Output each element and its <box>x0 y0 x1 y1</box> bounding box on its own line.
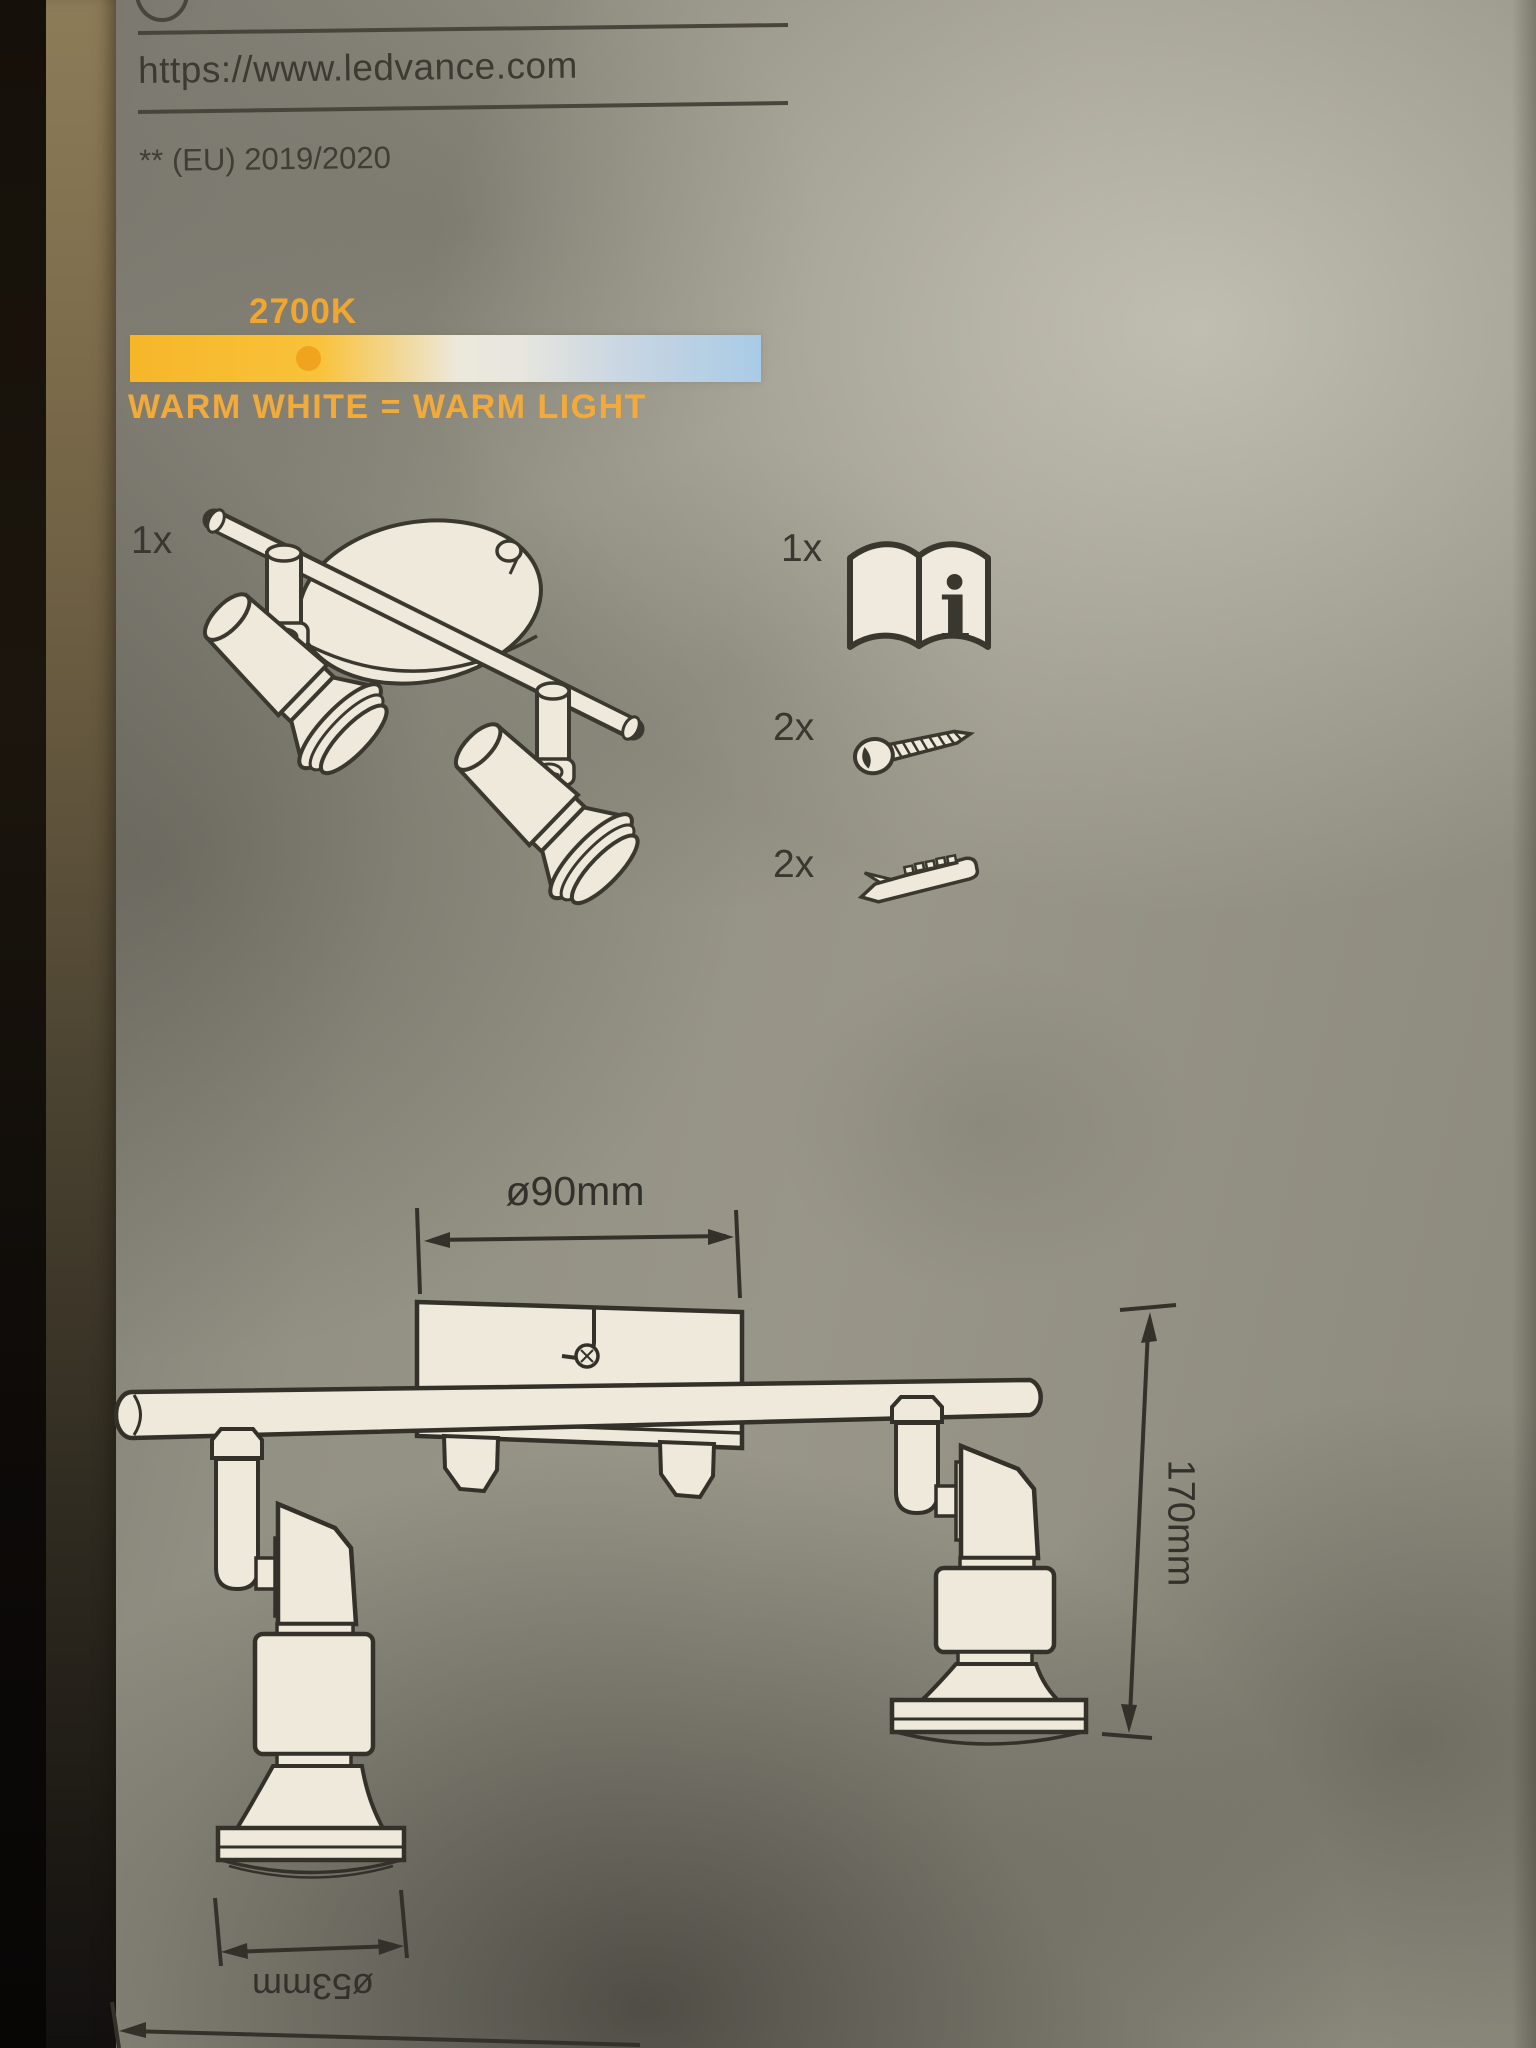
manual-book-icon: i <box>850 544 988 658</box>
manual-qty: 1x <box>781 527 822 571</box>
dimension-drawing <box>112 1208 1176 2048</box>
dim-canopy-width-lines <box>417 1208 740 1298</box>
info-glyph: i <box>939 559 971 658</box>
fixture-illustration <box>179 502 654 919</box>
printed-line-art: i <box>0 0 1536 2048</box>
dim-spot-width-lines <box>215 1890 407 1966</box>
temperature-marker <box>296 346 321 371</box>
kelvin-label: 2700K <box>249 292 357 332</box>
dim-height: 170mm <box>1160 1451 1202 1596</box>
website-url: https://www.ledvance.com <box>138 45 578 92</box>
dim-spot-diameter: ø53mm <box>223 1965 403 2007</box>
screw-qty: 2x <box>773 706 814 750</box>
dim-canopy-diameter: ø90mm <box>445 1168 705 1215</box>
package-panel-photo: i <box>0 0 1536 2048</box>
fixture-qty: 1x <box>131 519 172 563</box>
dim-overall-lines <box>112 2002 640 2048</box>
plug-qty: 2x <box>773 843 814 887</box>
wall-plug-icon <box>857 852 980 905</box>
screw-icon <box>852 717 975 777</box>
regulation-note: ** (EU) 2019/2020 <box>139 140 391 179</box>
warm-light-caption: WARM WHITE = WARM LIGHT <box>128 388 647 427</box>
color-temperature-scale <box>130 335 761 382</box>
